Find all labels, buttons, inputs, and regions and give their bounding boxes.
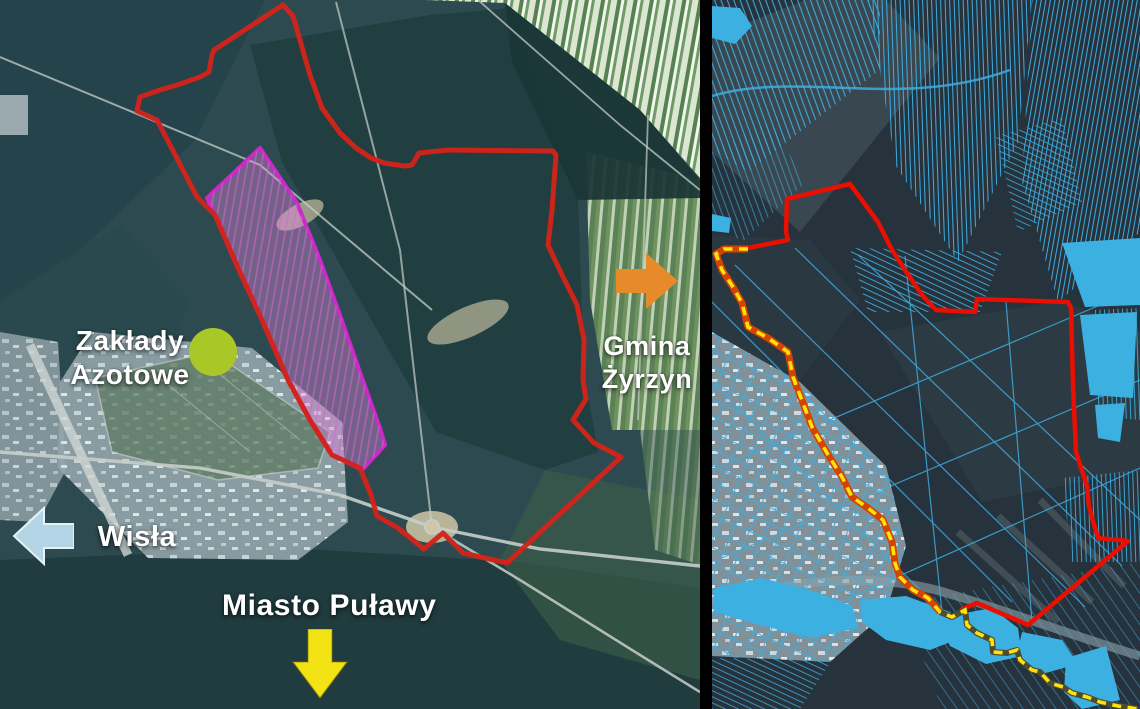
arrow-down-icon: [291, 629, 349, 699]
map-comparison-figure: Zakłady Azotowe Gmina Żyrzyn Wisła Miast…: [0, 0, 1140, 709]
arrow-left-icon: [12, 505, 74, 567]
miasto-pulawy-label: Miasto Puławy: [222, 588, 437, 625]
gmina-zyrzyn-label: Gmina Żyrzyn: [584, 330, 700, 396]
gmina-label-line2: Żyrzyn: [584, 363, 700, 396]
right-map-panel: [712, 0, 1140, 709]
left-map-panel: Zakłady Azotowe Gmina Żyrzyn Wisła Miast…: [0, 0, 700, 709]
zaklady-azotowe-label: Zakłady Azotowe: [40, 324, 220, 392]
wisla-label: Wisła: [82, 520, 192, 555]
right-cadastral-map: [712, 0, 1140, 709]
zaklady-label-line1: Zakłady: [40, 324, 220, 358]
arrow-right-icon: [616, 250, 680, 312]
roundabout: [425, 520, 439, 534]
zaklady-label-line2: Azotowe: [40, 358, 220, 392]
gmina-label-line1: Gmina: [584, 330, 700, 363]
panel-divider: [700, 0, 712, 709]
